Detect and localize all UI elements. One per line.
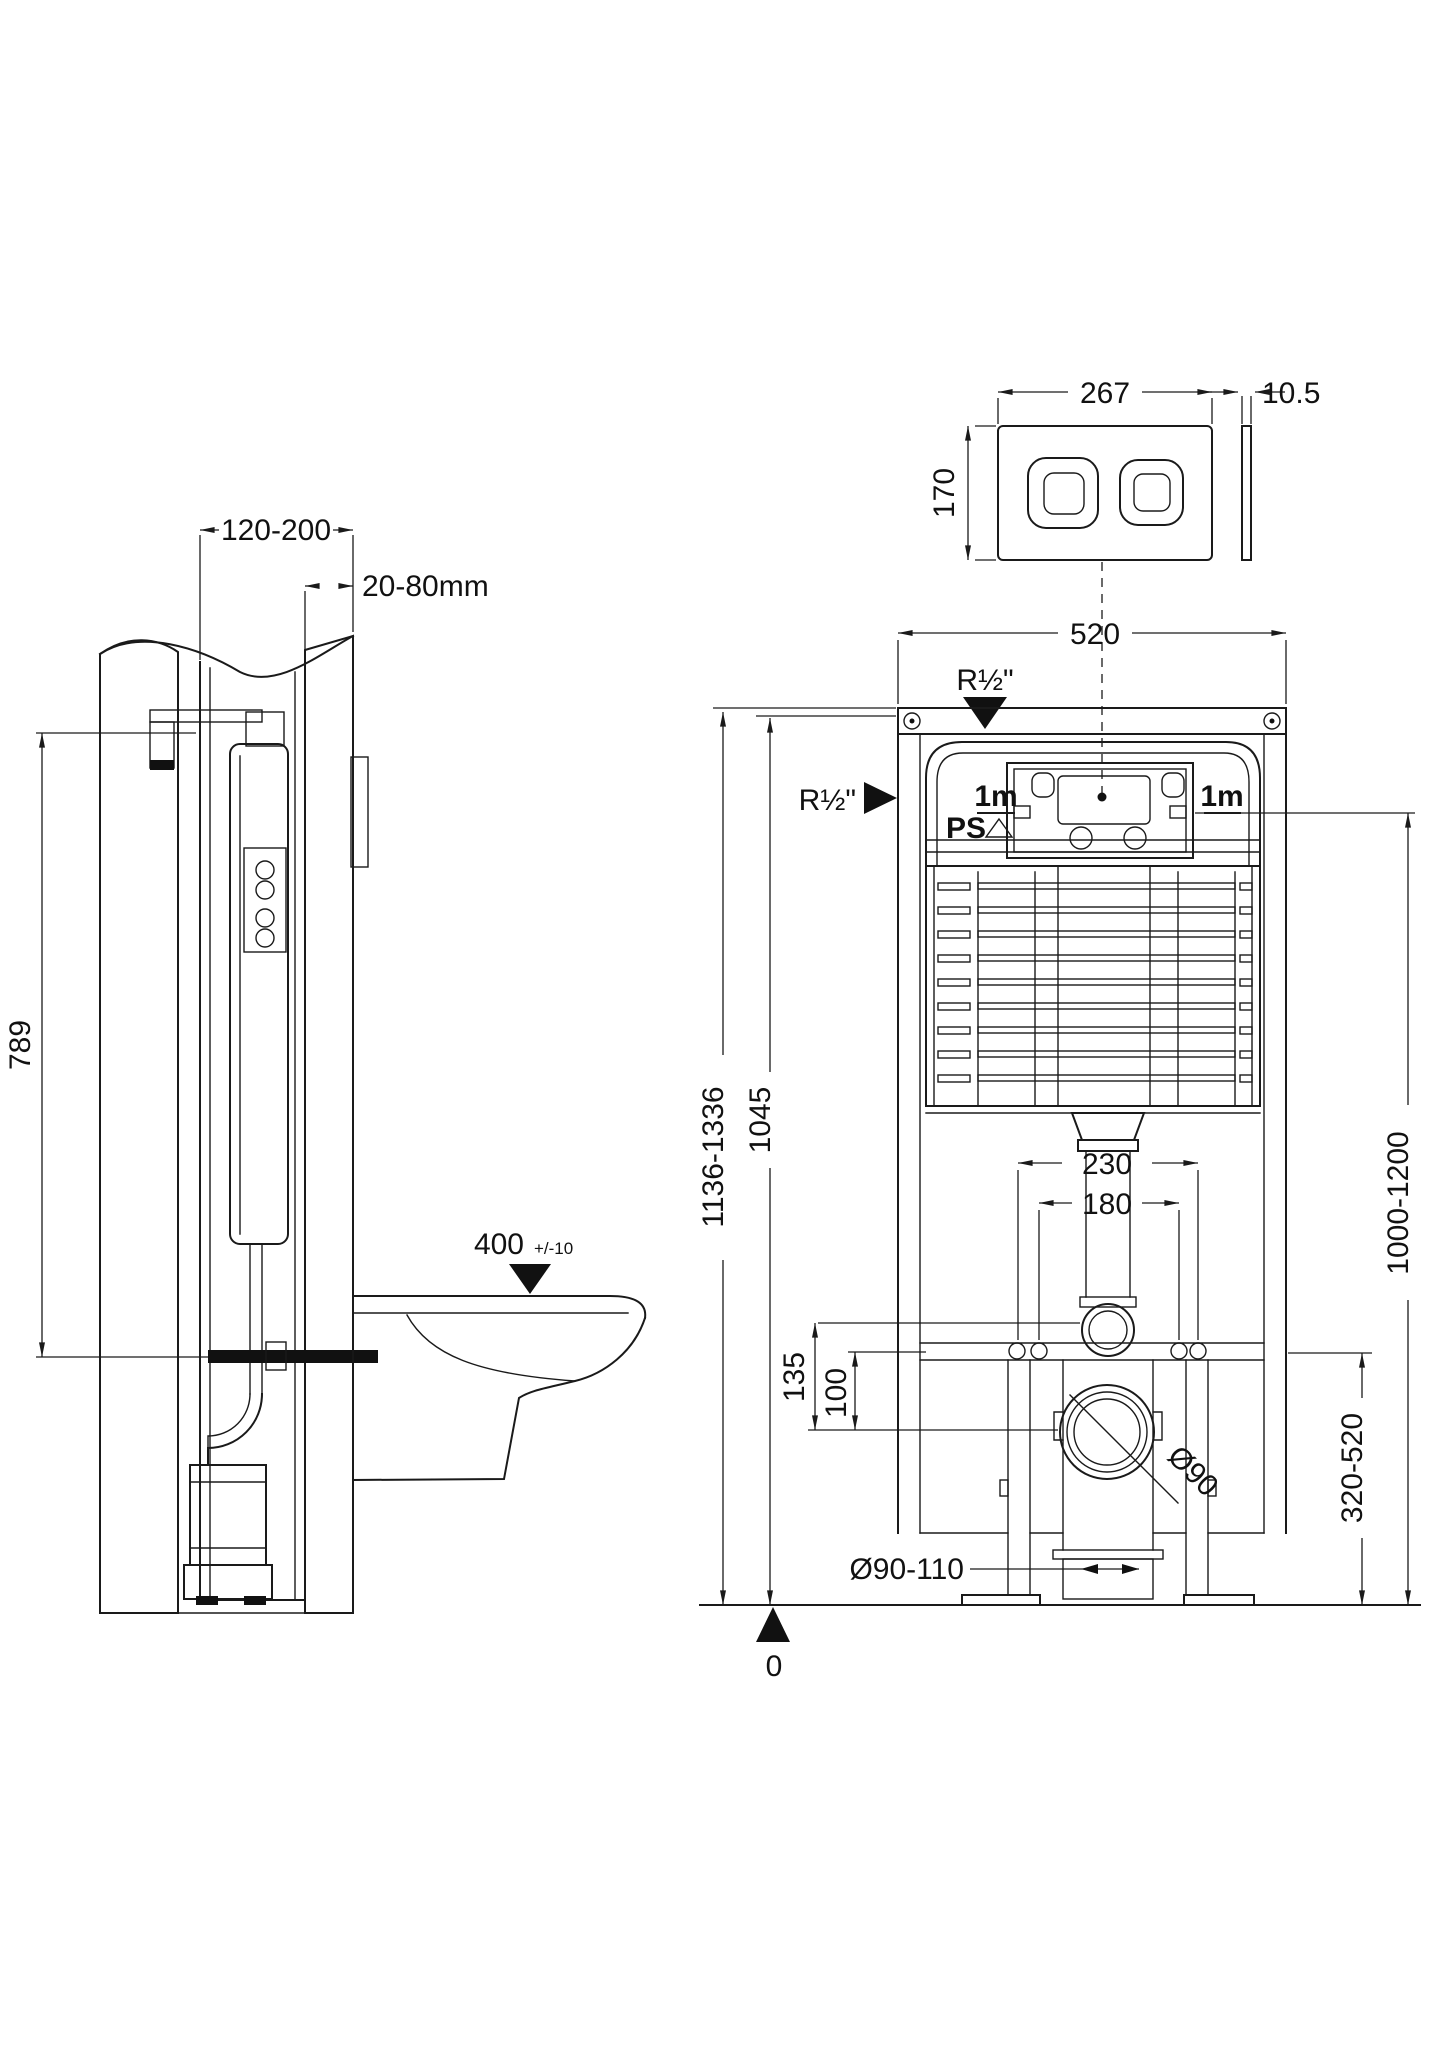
plate-width-label: 267 <box>1080 377 1130 410</box>
drain-diameter-label: Ø90 <box>1161 1440 1224 1503</box>
break-line-wave <box>100 636 353 677</box>
datum-label: 0 <box>766 1650 783 1683</box>
access-box <box>1007 763 1193 858</box>
inlet-height-label: 1000-1200 <box>1382 1131 1415 1274</box>
front-view: 520 R½" R½" <box>697 618 1420 1683</box>
frame-width-label: 520 <box>1070 618 1120 651</box>
floor-datum: 0 <box>700 1605 1420 1683</box>
seat-height-tolerance-label: +/-10 <box>534 1239 573 1258</box>
frame-depth-label: 120-200 <box>221 514 331 547</box>
hose-left-label: 1m <box>974 780 1017 813</box>
hose-left-tag-label: PS <box>946 812 986 845</box>
fixing-centres-label: 230 <box>1082 1148 1132 1181</box>
seat-height-label: 400 <box>474 1228 524 1261</box>
cistern-front <box>926 866 1260 1113</box>
toilet-bowl-profile <box>353 1296 645 1480</box>
overall-height-label: 1136-1336 <box>697 1086 730 1227</box>
finished-wall-hatch <box>305 636 353 1613</box>
outlet-height-dimension: 320-520 <box>1288 1353 1372 1605</box>
wc-frame-installation-drawing: 400 +/-10 120-200 20-80mm 789 <box>0 0 1445 2045</box>
water-inlet-top-label: R½" <box>956 664 1013 697</box>
hose-right-label: 1m <box>1200 780 1243 813</box>
flush-centres-label: 180 <box>1082 1188 1132 1221</box>
wall-bracket <box>150 710 262 770</box>
flush-button-large <box>1028 458 1098 528</box>
pipework-side <box>184 1244 272 1605</box>
plate-thickness-label: 10.5 <box>1262 377 1320 410</box>
frame-rails-side <box>200 662 305 1600</box>
cistern-side-profile <box>230 712 288 1244</box>
water-inlet-side: R½" <box>799 782 897 817</box>
flush-offset-label: 135 <box>778 1352 811 1402</box>
drain-assembly: Ø90 Ø90-110 <box>849 1360 1224 1599</box>
seat-height-dimension: 400 +/-10 <box>474 1228 573 1294</box>
frame-depth-dimension: 120-200 <box>200 514 353 660</box>
overall-height-dimension: 1136-1336 <box>697 708 896 1605</box>
plate-height-dimension: 170 <box>928 426 996 560</box>
flush-button-small <box>1120 460 1183 525</box>
water-inlet-side-label: R½" <box>799 784 856 817</box>
flush-centres-dimension: 180 <box>1039 1188 1179 1340</box>
inlet-height-dimension: 1000-1200 <box>1382 813 1415 1605</box>
outlet-height-label: 320-520 <box>1336 1413 1369 1523</box>
waste-diameter-label: Ø90-110 <box>849 1553 964 1586</box>
flush-bend <box>1082 1304 1134 1356</box>
plate-thickness-dimension: 10.5 <box>1208 377 1320 424</box>
plate-height-label: 170 <box>928 468 961 518</box>
plate-width-dimension: 267 <box>998 377 1212 424</box>
water-inlet-top-arrow <box>963 697 1007 729</box>
fixing-offset-dimension: 100 <box>820 1352 926 1430</box>
recycling-triangle-icon <box>986 819 1012 837</box>
flush-plate-face <box>998 426 1212 560</box>
hose-labels: 1m PS 1m <box>946 780 1415 845</box>
flush-plate-detail: 267 170 10.5 <box>928 377 1320 802</box>
tank-height-label: 789 <box>4 1020 37 1070</box>
fixing-offset-label: 100 <box>820 1368 853 1418</box>
insulation-ribs <box>938 883 1252 1082</box>
frame-height-dimension: 1045 <box>744 716 896 1605</box>
water-inlet-side-arrow <box>864 782 897 814</box>
datum-triangle-seat <box>509 1264 551 1294</box>
centre-dot <box>1098 793 1107 802</box>
frame-height-label: 1045 <box>744 1087 777 1154</box>
technical-drawing-sheet: 400 +/-10 120-200 20-80mm 789 <box>0 0 1445 2045</box>
water-inlet-top: R½" <box>956 664 1013 729</box>
wall-finish-label: 20-80mm <box>362 570 489 603</box>
side-section-view: 400 +/-10 120-200 20-80mm 789 <box>4 514 645 1613</box>
flush-plate-side-view <box>1242 426 1251 560</box>
structural-wall-hatch <box>100 640 178 1613</box>
datum-triangle-floor <box>756 1607 790 1642</box>
